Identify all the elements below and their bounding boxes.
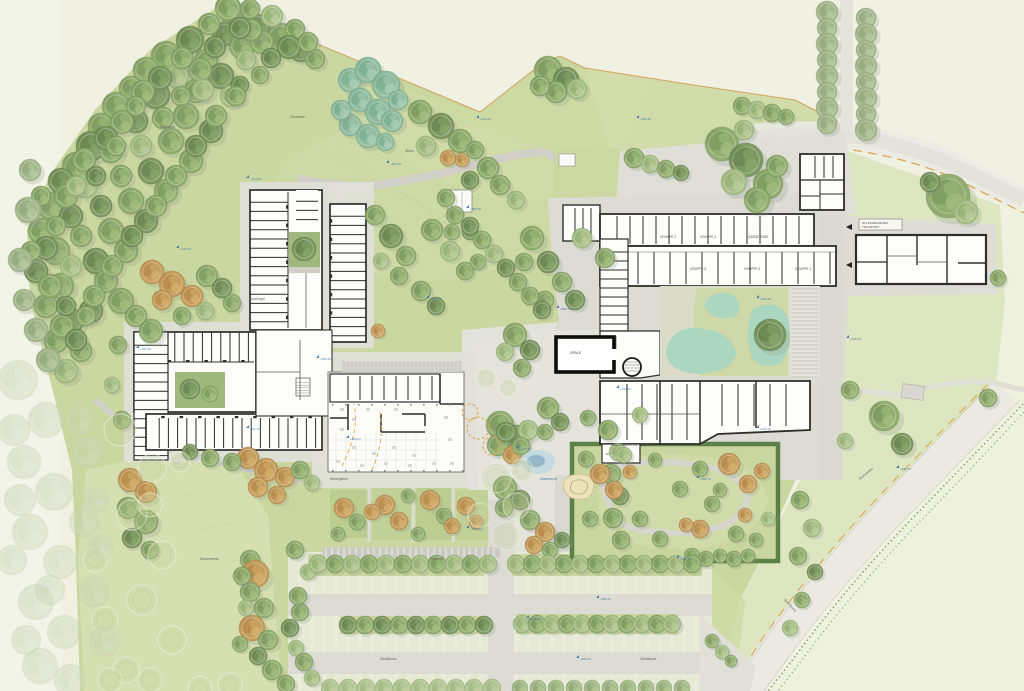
svg-text:+417.64: +417.64	[520, 447, 531, 451]
svg-text:+420.24: +420.24	[180, 247, 191, 251]
svg-text:TRANSPORT: TRANSPORT	[862, 225, 879, 229]
svg-text:Waldsaum: Waldsaum	[160, 125, 175, 129]
svg-text:GRUPPE 5: GRUPPE 5	[690, 267, 706, 271]
svg-text:+414.25: +414.25	[250, 177, 261, 181]
svg-text:Parkplatz: Parkplatz	[430, 557, 444, 561]
svg-text:Blumenwiese: Blumenwiese	[200, 557, 219, 561]
svg-text:Obstbäume: Obstbäume	[640, 657, 657, 661]
svg-text:+380.30: +380.30	[530, 617, 541, 621]
svg-text:Obstbäume: Obstbäume	[380, 657, 397, 661]
svg-text:+395.38: +395.38	[470, 207, 481, 211]
svg-text:+418.43: +418.43	[480, 117, 491, 121]
svg-text:+417.45: +417.45	[250, 427, 261, 431]
svg-text:+418.13: +418.13	[760, 427, 771, 431]
svg-text:+414.63: +414.63	[430, 297, 441, 301]
svg-text:+393.53: +393.53	[320, 357, 331, 361]
svg-text:GRUPPE 1: GRUPPE 1	[795, 267, 811, 271]
svg-text:Mietergärten: Mietergärten	[330, 477, 348, 481]
svg-text:+404.22: +404.22	[760, 297, 771, 301]
svg-text:+415.35: +415.35	[850, 337, 861, 341]
svg-text:Obstwiese: Obstwiese	[290, 115, 305, 119]
svg-text:GRUPPE 3: GRUPPE 3	[744, 267, 760, 271]
svg-text:+382.13: +382.13	[470, 527, 481, 531]
svg-text:+414.21: +414.21	[620, 387, 631, 391]
svg-text:+385.37: +385.37	[600, 597, 611, 601]
svg-text:+407.53: +407.53	[680, 557, 691, 561]
svg-text:+388.23: +388.23	[560, 307, 571, 311]
svg-text:OPALE: OPALE	[570, 351, 582, 355]
svg-text:Wasserspiel: Wasserspiel	[540, 477, 558, 481]
svg-text:+402.54: +402.54	[900, 467, 911, 471]
svg-text:Spielhügel: Spielhügel	[250, 297, 265, 301]
svg-text:GRUPPE 2: GRUPPE 2	[660, 235, 676, 239]
svg-text:GRUPPE 4: GRUPPE 4	[700, 235, 716, 239]
svg-text:+381.45: +381.45	[390, 162, 401, 166]
svg-text:Wiese: Wiese	[405, 149, 414, 153]
svg-text:+386.21: +386.21	[580, 657, 591, 661]
svg-text:+394.74: +394.74	[700, 477, 711, 481]
svg-text:KINDERGARTEN - GARTEN: KINDERGARTEN - GARTEN	[612, 443, 654, 447]
svg-text:+382.68: +382.68	[640, 117, 651, 121]
svg-text:+397.29: +397.29	[140, 347, 151, 351]
svg-text:GARDEROBE: GARDEROBE	[748, 235, 768, 239]
svg-text:+394.67: +394.67	[350, 437, 361, 441]
